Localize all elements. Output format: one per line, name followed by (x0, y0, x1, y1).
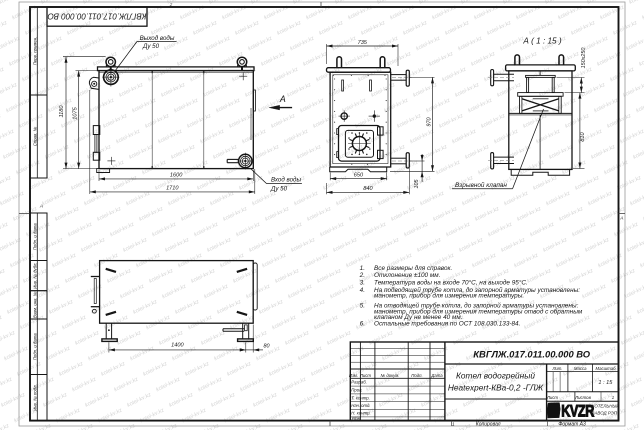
svg-text:Лит.: Лит. (551, 366, 562, 371)
svg-text:kotel-kv.kz: kotel-kv.kz (630, 392, 644, 409)
svg-text:Дата: Дата (430, 373, 443, 378)
svg-text:kotel-kv.kz: kotel-kv.kz (54, 206, 80, 223)
svg-text:kotel-kv.kz: kotel-kv.kz (361, 221, 387, 238)
svg-text:kotel-kv.kz: kotel-kv.kz (574, 175, 600, 192)
svg-text:kotel-kv.kz: kotel-kv.kz (415, 35, 441, 52)
svg-text:4.: 4. (360, 287, 365, 294)
svg-text:kotel-kv.kz: kotel-kv.kz (58, 361, 84, 378)
svg-text:kotel-kv.kz: kotel-kv.kz (435, 159, 461, 176)
svg-text:kotel-kv.kz: kotel-kv.kz (620, 330, 644, 347)
svg-text:kotel-kv.kz: kotel-kv.kz (594, 299, 620, 316)
svg-text:kotel-kv.kz: kotel-kv.kz (593, 97, 619, 114)
svg-text:kotel-kv.kz: kotel-kv.kz (297, 345, 323, 362)
svg-text:kotel-kv.kz: kotel-kv.kz (0, 268, 6, 285)
svg-text:kotel-kv.kz: kotel-kv.kz (607, 314, 633, 331)
svg-text:манометр, прибор для измерения: манометр, прибор для измерения температу… (374, 292, 524, 300)
svg-text:kotel-kv.kz: kotel-kv.kz (209, 190, 235, 207)
svg-text:kotel-kv.kz: kotel-kv.kz (529, 221, 555, 238)
svg-text:kotel-kv.kz: kotel-kv.kz (194, 423, 220, 430)
svg-text:kotel-kv.kz: kotel-kv.kz (345, 252, 371, 269)
svg-text:kotel-kv.kz: kotel-kv.kz (276, 20, 302, 37)
svg-text:kotel-kv.kz: kotel-kv.kz (410, 330, 436, 347)
svg-text:kotel-kv.kz: kotel-kv.kz (0, 221, 9, 238)
svg-text:kotel-kv.kz: kotel-kv.kz (248, 237, 274, 254)
svg-text:kotel-kv.kz: kotel-kv.kz (326, 330, 352, 347)
svg-text:kotel-kv.kz: kotel-kv.kz (199, 128, 225, 145)
svg-text:kotel-kv.kz: kotel-kv.kz (294, 392, 320, 409)
svg-text:kotel-kv.kz: kotel-kv.kz (278, 423, 304, 430)
svg-text:kotel-kv.kz: kotel-kv.kz (271, 314, 297, 331)
svg-text:kotel-kv.kz: kotel-kv.kz (113, 376, 139, 393)
svg-text:kotel-kv.kz: kotel-kv.kz (590, 144, 616, 161)
svg-text:kotel-kv.kz: kotel-kv.kz (55, 407, 81, 424)
svg-text:kotel-kv.kz: kotel-kv.kz (286, 82, 312, 99)
svg-text:Ду 50: Ду 50 (142, 43, 160, 50)
svg-text:kotel-kv.kz: kotel-kv.kz (0, 175, 12, 192)
svg-text:kotel-kv.kz: kotel-kv.kz (638, 51, 644, 68)
svg-text:kotel-kv.kz: kotel-kv.kz (108, 20, 134, 37)
svg-text:kotel-kv.kz: kotel-kv.kz (339, 345, 365, 362)
svg-text:kotel-kv.kz: kotel-kv.kz (354, 113, 380, 130)
svg-text:kotel-kv.kz: kotel-kv.kz (12, 206, 38, 223)
svg-text:kotel-kv.kz: kotel-kv.kz (234, 20, 260, 37)
svg-text:kotel-kv.kz: kotel-kv.kz (260, 51, 286, 68)
svg-text:kotel-kv.kz: kotel-kv.kz (109, 221, 135, 238)
svg-text:kotel-kv.kz: kotel-kv.kz (3, 345, 29, 362)
svg-text:kotel-kv.kz: kotel-kv.kz (445, 221, 471, 238)
svg-text:kotel-kv.kz: kotel-kv.kz (446, 423, 472, 430)
svg-text:kotel-kv.kz: kotel-kv.kz (245, 283, 271, 300)
svg-text:kotel-kv.kz: kotel-kv.kz (283, 128, 309, 145)
svg-text:kotel-kv.kz: kotel-kv.kz (64, 268, 90, 285)
svg-text:kotel-kv.kz: kotel-kv.kz (578, 330, 604, 347)
svg-text:kotel-kv.kz: kotel-kv.kz (97, 407, 123, 424)
svg-text:kotel-kv.kz: kotel-kv.kz (619, 128, 644, 145)
svg-text:kotel-kv.kz: kotel-kv.kz (296, 144, 322, 161)
svg-text:kotel-kv.kz: kotel-kv.kz (581, 283, 607, 300)
svg-text:Котел водогрейный: Котел водогрейный (456, 371, 535, 381)
svg-text:kotel-kv.kz: kotel-kv.kz (580, 82, 606, 99)
svg-text:kotel-kv.kz: kotel-kv.kz (193, 221, 219, 238)
svg-text:kotel-kv.kz: kotel-kv.kz (454, 82, 480, 99)
svg-text:kotel-kv.kz: kotel-kv.kz (639, 252, 644, 269)
svg-text:kotel-kv.kz: kotel-kv.kz (37, 35, 63, 52)
svg-text:kotel-kv.kz: kotel-kv.kz (82, 0, 108, 6)
svg-text:kotel-kv.kz: kotel-kv.kz (180, 206, 206, 223)
svg-text:kotel-kv.kz: kotel-kv.kz (318, 20, 344, 37)
svg-text:kotel-kv.kz: kotel-kv.kz (583, 35, 609, 52)
svg-text:kotel-kv.kz: kotel-kv.kz (284, 330, 310, 347)
svg-text:kotel-kv.kz: kotel-kv.kz (458, 237, 484, 254)
svg-text:kotel-kv.kz: kotel-kv.kz (215, 97, 241, 114)
svg-text:КОТЕЛЬНЫЙ: КОТЕЛЬНЫЙ (592, 404, 620, 409)
svg-text:kotel-kv.kz: kotel-kv.kz (0, 190, 25, 207)
svg-text:kotel-kv.kz: kotel-kv.kz (360, 20, 386, 37)
svg-text:kotel-kv.kz: kotel-kv.kz (79, 35, 105, 52)
svg-text:kotel-kv.kz: kotel-kv.kz (474, 206, 500, 223)
svg-text:kotel-kv.kz: kotel-kv.kz (128, 144, 154, 161)
svg-text:kotel-kv.kz: kotel-kv.kz (499, 35, 525, 52)
svg-text:kotel-kv.kz: kotel-kv.kz (561, 159, 587, 176)
svg-text:kotel-kv.kz: kotel-kv.kz (0, 113, 2, 130)
svg-text:kotel-kv.kz: kotel-kv.kz (623, 283, 644, 300)
svg-text:kotel-kv.kz: kotel-kv.kz (290, 237, 316, 254)
svg-text:kotel-kv.kz: kotel-kv.kz (610, 268, 636, 285)
svg-text:kotel-kv.kz: kotel-kv.kz (373, 35, 399, 52)
svg-text:kotel-kv.kz: kotel-kv.kz (334, 0, 360, 6)
svg-text:kotel-kv.kz: kotel-kv.kz (313, 314, 339, 331)
svg-text:kotel-kv.kz: kotel-kv.kz (239, 376, 265, 393)
svg-text:kotel-kv.kz: kotel-kv.kz (457, 35, 483, 52)
svg-text:kotel-kv.kz: kotel-kv.kz (584, 237, 610, 254)
svg-text:kotel-kv.kz: kotel-kv.kz (525, 66, 551, 83)
svg-text:kotel-kv.kz: kotel-kv.kz (68, 423, 94, 430)
svg-text:kotel-kv.kz: kotel-kv.kz (235, 221, 261, 238)
svg-text:Ду 50: Ду 50 (270, 186, 288, 193)
svg-text:kotel-kv.kz: kotel-kv.kz (80, 237, 106, 254)
svg-text:kotel-kv.kz: kotel-kv.kz (0, 82, 18, 99)
svg-text:kotel-kv.kz: kotel-kv.kz (87, 345, 113, 362)
svg-text:Все размеры для справок.: Все размеры для справок. (374, 264, 452, 272)
svg-text:Остальные требования по ОСТ 10: Остальные требования по ОСТ 108.030.133-… (374, 320, 520, 328)
svg-text:Heatexpert-КВа-0,2 -ГЛЖ: Heatexpert-КВа-0,2 -ГЛЖ (448, 382, 545, 392)
svg-text:kotel-kv.kz: kotel-kv.kz (131, 97, 157, 114)
svg-text:kotel-kv.kz: kotel-kv.kz (181, 407, 207, 424)
svg-text:kotel-kv.kz: kotel-kv.kz (558, 206, 584, 223)
svg-text:kotel-kv.kz: kotel-kv.kz (270, 113, 296, 130)
svg-text:kotel-kv.kz: kotel-kv.kz (250, 0, 276, 6)
svg-text:kotel-kv.kz: kotel-kv.kz (636, 299, 644, 316)
svg-text:kotel-kv.kz: kotel-kv.kz (18, 113, 44, 130)
svg-text:А: А (39, 204, 43, 210)
svg-text:Справ. №: Справ. № (32, 126, 37, 146)
svg-text:kotel-kv.kz: kotel-kv.kz (45, 345, 71, 362)
svg-text:kotel-kv.kz: kotel-kv.kz (0, 376, 13, 393)
svg-text:kotel-kv.kz: kotel-kv.kz (176, 51, 202, 68)
svg-text:kotel-kv.kz: kotel-kv.kz (523, 314, 549, 331)
svg-text:Масса: Масса (574, 366, 587, 371)
svg-text:kotel-kv.kz: kotel-kv.kz (115, 128, 141, 145)
svg-text:kotel-kv.kz: kotel-kv.kz (71, 376, 97, 393)
svg-text:kotel-kv.kz: kotel-kv.kz (168, 392, 194, 409)
svg-text:Инв. № дубл.: Инв. № дубл. (32, 262, 37, 288)
svg-text:kotel-kv.kz: kotel-kv.kz (341, 97, 367, 114)
svg-text:970: 970 (426, 116, 432, 126)
svg-text:kotel-kv.kz: kotel-kv.kz (160, 82, 186, 99)
svg-text:КВГЛЖ.017.011.00.000 ВО: КВГЛЖ.017.011.00.000 ВО (47, 11, 147, 20)
svg-text:1180: 1180 (59, 105, 65, 118)
svg-text:kotel-kv.kz: kotel-kv.kz (609, 66, 635, 83)
svg-text:kotel-kv.kz: kotel-kv.kz (84, 392, 110, 409)
svg-text:kotel-kv.kz: kotel-kv.kz (122, 237, 148, 254)
svg-text:kotel-kv.kz: kotel-kv.kz (261, 252, 287, 269)
svg-text:kotel-kv.kz: kotel-kv.kz (152, 423, 178, 430)
svg-text:kotel-kv.kz: kotel-kv.kz (548, 144, 574, 161)
svg-text:kotel-kv.kz: kotel-kv.kz (433, 407, 459, 424)
svg-text:Разраб.: Разраб. (351, 380, 367, 385)
svg-text:kotel-kv.kz: kotel-kv.kz (530, 423, 556, 430)
svg-text:Лист: Лист (359, 373, 371, 378)
svg-text:kotel-kv.kz: kotel-kv.kz (202, 82, 228, 99)
svg-text:Масштаб: Масштаб (595, 366, 616, 371)
svg-text:kotel-kv.kz: kotel-kv.kz (157, 128, 183, 145)
svg-text:1.: 1. (360, 265, 365, 272)
svg-text:kotel-kv.kz: kotel-kv.kz (542, 237, 568, 254)
svg-text:kotel-kv.kz: kotel-kv.kz (190, 268, 216, 285)
svg-text:kotel-kv.kz: kotel-kv.kz (244, 82, 270, 99)
svg-text:Температура воды на входе 70°С: Температура воды на входе 70°С, на выход… (374, 279, 528, 287)
svg-text:kotel-kv.kz: kotel-kv.kz (73, 128, 99, 145)
svg-text:kotel-kv.kz: kotel-kv.kz (432, 206, 458, 223)
svg-text:kotel-kv.kz: kotel-kv.kz (148, 268, 174, 285)
svg-text:kotel-kv.kz: kotel-kv.kz (102, 113, 128, 130)
svg-text:kotel-kv.kz: kotel-kv.kz (320, 423, 346, 430)
svg-text:kotel-kv.kz: kotel-kv.kz (461, 190, 487, 207)
svg-text:kotel-kv.kz: kotel-kv.kz (467, 97, 493, 114)
svg-text:kotel-kv.kz: kotel-kv.kz (513, 252, 539, 269)
svg-text:kotel-kv.kz: kotel-kv.kz (138, 206, 164, 223)
svg-text:kotel-kv.kz: kotel-kv.kz (383, 97, 409, 114)
svg-text:kotel-kv.kz: kotel-kv.kz (141, 159, 167, 176)
svg-text:kotel-kv.kz: kotel-kv.kz (142, 361, 168, 378)
svg-text:kotel-kv.kz: kotel-kv.kz (377, 190, 403, 207)
svg-text:kotel-kv.kz: kotel-kv.kz (407, 376, 433, 393)
svg-text:kotel-kv.kz: kotel-kv.kz (319, 221, 345, 238)
svg-text:kotel-kv.kz: kotel-kv.kz (545, 190, 571, 207)
svg-text:kotel-kv.kz: kotel-kv.kz (0, 35, 21, 52)
svg-text:1600: 1600 (170, 173, 183, 179)
svg-text:Инв. № подл.: Инв. № подл. (32, 384, 37, 411)
svg-text:kotel-kv.kz: kotel-kv.kz (486, 20, 512, 37)
svg-text:kotel-kv.kz: kotel-kv.kz (228, 113, 254, 130)
svg-text:kotel-kv.kz: kotel-kv.kz (48, 299, 74, 316)
svg-text:kotel-kv.kz: kotel-kv.kz (419, 190, 445, 207)
svg-text:kotel-kv.kz: kotel-kv.kz (100, 361, 126, 378)
svg-text:kotel-kv.kz: kotel-kv.kz (189, 66, 215, 83)
svg-text:kotel-kv.kz: kotel-kv.kz (236, 423, 262, 430)
svg-text:kotel-kv.kz: kotel-kv.kz (396, 113, 422, 130)
svg-text:kotel-kv.kz: kotel-kv.kz (309, 159, 335, 176)
svg-text:kotel-kv.kz: kotel-kv.kz (151, 221, 177, 238)
svg-text:Взам. инв. №: Взам. инв. № (32, 291, 37, 318)
svg-text:kotel-kv.kz: kotel-kv.kz (323, 376, 349, 393)
svg-text:kotel-kv.kz: kotel-kv.kz (192, 20, 218, 37)
svg-text:kotel-kv.kz: kotel-kv.kz (633, 345, 644, 362)
svg-text:kotel-kv.kz: kotel-kv.kz (470, 51, 496, 68)
svg-text:kotel-kv.kz: kotel-kv.kz (368, 330, 394, 347)
svg-text:kotel-kv.kz: kotel-kv.kz (438, 113, 464, 130)
svg-text:kotel-kv.kz: kotel-kv.kz (83, 190, 109, 207)
svg-text:kotel-kv.kz: kotel-kv.kz (35, 283, 61, 300)
svg-text:kotel-kv.kz: kotel-kv.kz (303, 252, 329, 269)
svg-text:kotel-kv.kz: kotel-kv.kz (381, 345, 407, 362)
svg-text:kotel-kv.kz: kotel-kv.kz (532, 175, 558, 192)
svg-text:kotel-kv.kz: kotel-kv.kz (0, 330, 16, 347)
svg-text:kotel-kv.kz: kotel-kv.kz (203, 283, 229, 300)
svg-text:kotel-kv.kz: kotel-kv.kz (603, 159, 629, 176)
svg-text:kotel-kv.kz: kotel-kv.kz (412, 82, 438, 99)
svg-text:kotel-kv.kz: kotel-kv.kz (167, 190, 193, 207)
svg-text:kotel-kv.kz: kotel-kv.kz (116, 330, 142, 347)
svg-text:1710: 1710 (166, 186, 179, 192)
svg-text:kotel-kv.kz: kotel-kv.kz (134, 51, 160, 68)
svg-text:Вход воды: Вход воды (271, 177, 301, 184)
svg-text:kotel-kv.kz: kotel-kv.kz (416, 237, 442, 254)
svg-text:kotel-kv.kz: kotel-kv.kz (0, 20, 8, 37)
svg-text:kotel-kv.kz: kotel-kv.kz (218, 51, 244, 68)
svg-text:kotel-kv.kz: kotel-kv.kz (613, 221, 639, 238)
svg-text:1400: 1400 (171, 343, 184, 349)
svg-text:kotel-kv.kz: kotel-kv.kz (281, 376, 307, 393)
svg-text:kotel-kv.kz: kotel-kv.kz (273, 66, 299, 83)
svg-text:kotel-kv.kz: kotel-kv.kz (40, 0, 66, 6)
svg-text:kotel-kv.kz: kotel-kv.kz (402, 20, 428, 37)
svg-text:kotel-kv.kz: kotel-kv.kz (139, 407, 165, 424)
svg-text:kotel-kv.kz: kotel-kv.kz (28, 175, 54, 192)
svg-text:kotel-kv.kz: kotel-kv.kz (70, 175, 96, 192)
svg-text:kotel-kv.kz: kotel-kv.kz (535, 128, 561, 145)
svg-text:А: А (619, 216, 623, 222)
svg-text:kotel-kv.kz: kotel-kv.kz (517, 407, 543, 424)
svg-text:kotel-kv.kz: kotel-kv.kz (487, 221, 513, 238)
svg-text:kotel-kv.kz: kotel-kv.kz (462, 392, 488, 409)
svg-text:Подп. и дата: Подп. и дата (32, 223, 37, 251)
svg-text:2.: 2. (359, 272, 365, 279)
svg-text:kotel-kv.kz: kotel-kv.kz (184, 361, 210, 378)
svg-text:kotel-kv.kz: kotel-kv.kz (626, 237, 644, 254)
svg-text:kotel-kv.kz: kotel-kv.kz (126, 392, 152, 409)
svg-text:kotel-kv.kz: kotel-kv.kz (118, 82, 144, 99)
svg-text:kotel-kv.kz: kotel-kv.kz (206, 237, 232, 254)
svg-text:kotel-kv.kz: kotel-kv.kz (293, 190, 319, 207)
svg-text:KVZR: KVZR (561, 402, 594, 421)
svg-text:kotel-kv.kz: kotel-kv.kz (420, 392, 446, 409)
svg-text:Нач. отд.: Нач. отд. (351, 403, 370, 408)
svg-text:kotel-kv.kz: kotel-kv.kz (99, 159, 125, 176)
svg-text:kotel-kv.kz: kotel-kv.kz (205, 35, 231, 52)
svg-text:kotel-kv.kz: kotel-kv.kz (129, 345, 155, 362)
svg-text:Взрывной клапан: Взрывной клапан (455, 181, 507, 189)
svg-text:kotel-kv.kz: kotel-kv.kz (409, 128, 435, 145)
svg-text:kotel-kv.kz: kotel-kv.kz (66, 20, 92, 37)
svg-text:kotel-kv.kz: kotel-kv.kz (617, 376, 643, 393)
svg-text:kotel-kv.kz: kotel-kv.kz (522, 113, 548, 130)
svg-text:150x250: 150x250 (581, 48, 587, 69)
svg-text:kotel-kv.kz: kotel-kv.kz (544, 0, 570, 6)
svg-text:kotel-kv.kz: kotel-kv.kz (622, 82, 644, 99)
svg-text:kotel-kv.kz: kotel-kv.kz (502, 0, 528, 6)
svg-text:kotel-kv.kz: kotel-kv.kz (57, 159, 83, 176)
svg-text:Перв. примен.: Перв. примен. (32, 37, 37, 66)
svg-text:kotel-kv.kz: kotel-kv.kz (591, 345, 617, 362)
svg-text:kotel-kv.kz: kotel-kv.kz (635, 97, 644, 114)
svg-text:kotel-kv.kz: kotel-kv.kz (147, 66, 173, 83)
svg-text:kotel-kv.kz: kotel-kv.kz (251, 190, 277, 207)
svg-text:kotel-kv.kz: kotel-kv.kz (161, 283, 187, 300)
svg-text:kotel-kv.kz: kotel-kv.kz (625, 35, 644, 52)
svg-text:ЗАВОД РЭП: ЗАВОД РЭП (592, 411, 618, 416)
svg-text:kotel-kv.kz: kotel-kv.kz (614, 423, 640, 430)
svg-text:КВГЛЖ.017.011.00.000 ВО: КВГЛЖ.017.011.00.000 ВО (473, 348, 591, 359)
svg-text:kotel-kv.kz: kotel-kv.kz (494, 330, 520, 347)
svg-text:Изм.: Изм. (349, 373, 358, 378)
svg-text:kotel-kv.kz: kotel-kv.kz (42, 392, 68, 409)
svg-text:kotel-kv.kz: kotel-kv.kz (306, 206, 332, 223)
svg-text:kotel-kv.kz: kotel-kv.kz (132, 299, 158, 316)
svg-text:kotel-kv.kz: kotel-kv.kz (67, 221, 93, 238)
svg-text:kotel-kv.kz: kotel-kv.kz (493, 128, 519, 145)
svg-text:Отклонение ±100 мм.: Отклонение ±100 мм. (374, 272, 440, 279)
svg-text:kotel-kv.kz: kotel-kv.kz (335, 190, 361, 207)
svg-text:kotel-kv.kz: kotel-kv.kz (587, 190, 613, 207)
svg-text:kotel-kv.kz: kotel-kv.kz (528, 20, 554, 37)
svg-text:6.: 6. (360, 321, 365, 328)
svg-text:1 : 15: 1 : 15 (598, 380, 613, 386)
svg-text:kotel-kv.kz: kotel-kv.kz (226, 361, 252, 378)
svg-text:kotel-kv.kz: kotel-kv.kz (277, 221, 303, 238)
svg-text:kotel-kv.kz: kotel-kv.kz (632, 144, 644, 161)
svg-text:Н. контр.: Н. контр. (351, 411, 370, 416)
svg-text:kotel-kv.kz: kotel-kv.kz (96, 206, 122, 223)
svg-text:kotel-kv.kz: kotel-kv.kz (44, 144, 70, 161)
svg-text:kotel-kv.kz: kotel-kv.kz (526, 268, 552, 285)
svg-text:kotel-kv.kz: kotel-kv.kz (348, 206, 374, 223)
svg-text:840: 840 (363, 186, 373, 192)
svg-text:kotel-kv.kz: kotel-kv.kz (125, 190, 151, 207)
svg-text:kotel-kv.kz: kotel-kv.kz (21, 66, 47, 83)
svg-text:3.: 3. (360, 280, 365, 287)
svg-text:kotel-kv.kz: kotel-kv.kz (312, 113, 338, 130)
svg-text:kotel-kv.kz: kotel-kv.kz (164, 237, 190, 254)
svg-text:kotel-kv.kz: kotel-kv.kz (144, 113, 170, 130)
svg-text:kotel-kv.kz: kotel-kv.kz (460, 0, 486, 6)
svg-text:kotel-kv.kz: kotel-kv.kz (119, 283, 145, 300)
svg-text:Подп.: Подп. (411, 373, 422, 378)
svg-text:kotel-kv.kz: kotel-kv.kz (365, 376, 391, 393)
svg-text:kotel-kv.kz: kotel-kv.kz (329, 283, 355, 300)
svg-text:kotel-kv.kz: kotel-kv.kz (376, 0, 402, 6)
svg-text:5.: 5. (360, 303, 365, 310)
svg-text:kotel-kv.kz: kotel-kv.kz (196, 175, 222, 192)
svg-text:kotel-kv.kz: kotel-kv.kz (597, 252, 623, 269)
svg-text:kotel-kv.kz: kotel-kv.kz (222, 206, 248, 223)
svg-text:kotel-kv.kz: kotel-kv.kz (292, 0, 318, 6)
svg-text:kotel-kv.kz: kotel-kv.kz (287, 283, 313, 300)
svg-text:kotel-kv.kz: kotel-kv.kz (61, 314, 87, 331)
svg-text:kotel-kv.kz: kotel-kv.kz (124, 0, 150, 6)
svg-text:kotel-kv.kz: kotel-kv.kz (441, 66, 467, 83)
svg-text:kotel-kv.kz: kotel-kv.kz (509, 97, 535, 114)
svg-text:kotel-kv.kz: kotel-kv.kz (628, 0, 644, 6)
svg-text:kotel-kv.kz: kotel-kv.kz (471, 252, 497, 269)
svg-text:kotel-kv.kz: kotel-kv.kz (26, 423, 52, 430)
svg-text:kotel-kv.kz: kotel-kv.kz (616, 175, 642, 192)
svg-text:kotel-kv.kz: kotel-kv.kz (586, 0, 612, 6)
svg-text:kotel-kv.kz: kotel-kv.kz (391, 407, 417, 424)
svg-text:kotel-kv.kz: kotel-kv.kz (110, 423, 136, 430)
svg-text:kotel-kv.kz: kotel-kv.kz (404, 423, 430, 430)
svg-text:kotel-kv.kz: kotel-kv.kz (197, 376, 223, 393)
svg-text:kotel-kv.kz: kotel-kv.kz (173, 97, 199, 114)
svg-text:А: А (279, 94, 286, 104)
svg-text:kotel-kv.kz: kotel-kv.kz (299, 97, 325, 114)
svg-text:kotel-kv.kz: kotel-kv.kz (464, 144, 490, 161)
svg-text:Выход воды: Выход воды (140, 35, 175, 42)
svg-text:Копировал: Копировал (476, 421, 501, 427)
svg-text:kotel-kv.kz: kotel-kv.kz (254, 144, 280, 161)
svg-text:kotel-kv.kz: kotel-kv.kz (0, 66, 5, 83)
svg-text:Подп. и дата: Подп. и дата (32, 333, 37, 361)
